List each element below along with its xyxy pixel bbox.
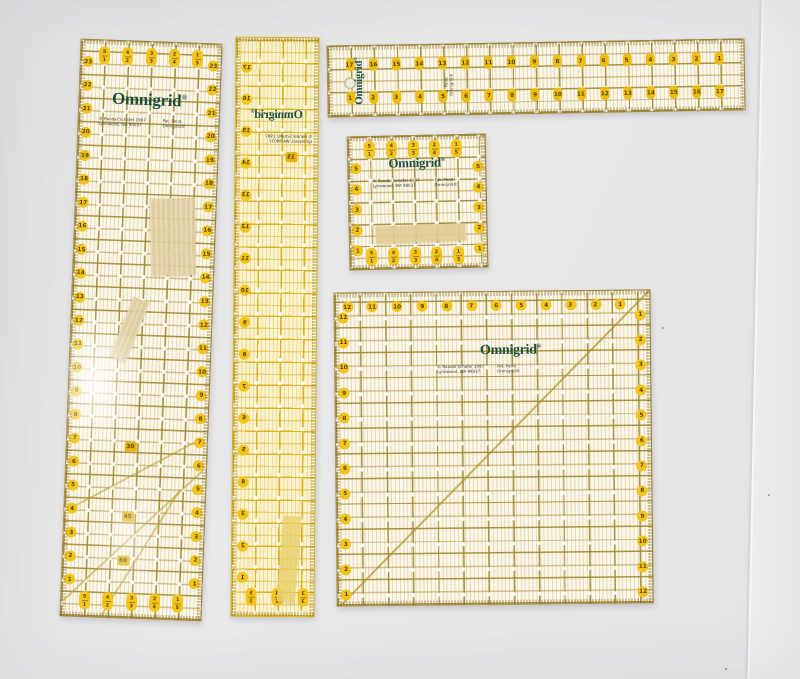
number-badge: 2 bbox=[635, 334, 646, 345]
number-badge: 3 bbox=[392, 90, 401, 103]
angle-line-45 bbox=[341, 290, 650, 605]
number-badge: 1 bbox=[635, 309, 646, 320]
number-badge: 5 bbox=[516, 300, 527, 311]
number-badge: 11 bbox=[637, 561, 648, 572]
angle-badge: 60 bbox=[117, 555, 129, 565]
dust-speck bbox=[768, 494, 770, 496]
number-badge: 9 bbox=[416, 301, 427, 312]
angle-badge: 45 bbox=[122, 511, 134, 521]
number-badge: 10 bbox=[554, 88, 563, 101]
number-badge: 10 bbox=[239, 285, 250, 296]
number-badge: 5 bbox=[238, 444, 249, 455]
number-badge: 12 bbox=[637, 586, 648, 597]
number-badge: 15 bbox=[669, 86, 678, 99]
brand-logo: Omnigrid® bbox=[480, 342, 541, 359]
number-badge: 8 bbox=[339, 413, 350, 424]
number-badge: 1 bbox=[615, 299, 626, 310]
number-badge: 17 bbox=[241, 62, 252, 73]
dual-number-badge: 33 bbox=[408, 140, 419, 158]
masking-tape bbox=[150, 198, 196, 276]
number-badge: 9 bbox=[239, 317, 250, 328]
registered-mark: ® bbox=[251, 109, 255, 115]
number-badge: 16 bbox=[241, 94, 252, 105]
fine-print: Pat. Pend.Omnigrid® bbox=[497, 364, 532, 374]
registered-mark: ® bbox=[181, 93, 187, 102]
brand-name: Omnigrid bbox=[480, 343, 537, 359]
dual-number-badge: 24 bbox=[149, 593, 161, 611]
number-badge: 8 bbox=[553, 55, 562, 68]
number-badge: 4 bbox=[635, 384, 646, 395]
number-badge: 9 bbox=[530, 55, 539, 68]
number-badge: 1 bbox=[346, 91, 355, 104]
number-badge: 6 bbox=[636, 435, 647, 446]
number-badge: 6 bbox=[339, 463, 350, 474]
number-badge: 11 bbox=[577, 87, 586, 100]
number-badge: 16 bbox=[692, 85, 701, 98]
dual-number-badge: 24 bbox=[431, 246, 442, 264]
number-badge: 10 bbox=[507, 55, 516, 68]
brand-logo-mirrored: Omnigrid® bbox=[236, 107, 318, 123]
number-badge: 5 bbox=[622, 53, 631, 66]
edge-ticks bbox=[739, 39, 744, 109]
number-badge: 6 bbox=[238, 413, 249, 424]
ruler-6x6: Omnigrid® © Randal Schafer 1987Lynnwood,… bbox=[347, 134, 489, 271]
number-badge: 5 bbox=[339, 488, 350, 499]
masking-tape bbox=[110, 297, 150, 363]
number-badge: 1 bbox=[715, 52, 724, 65]
dual-number-badge: 15 bbox=[172, 594, 184, 612]
edge-ticks bbox=[645, 290, 652, 602]
dual-number-badge: 42 bbox=[102, 592, 114, 610]
fine-print: © Randal Schafer 1987Lynnwood, WA 98037 bbox=[98, 116, 133, 127]
number-badge: 7 bbox=[339, 438, 350, 449]
edge-ticks bbox=[327, 47, 332, 117]
dual-number-badge: 33 bbox=[410, 247, 421, 265]
dual-number-badge: 24 bbox=[169, 49, 181, 67]
number-badge: 17 bbox=[345, 58, 354, 71]
dust-speck bbox=[725, 668, 727, 670]
dual-number-badge: 33 bbox=[126, 593, 138, 611]
number-badge: 4 bbox=[238, 476, 249, 487]
dual-number-badge: 33 bbox=[146, 48, 158, 66]
number-badge: 3 bbox=[340, 539, 351, 550]
number-badge: 4 bbox=[540, 299, 551, 310]
dual-number-badge: 33 bbox=[298, 588, 309, 606]
number-badge: 6 bbox=[461, 89, 470, 102]
number-badge: 10 bbox=[338, 362, 349, 373]
number-badge: 8 bbox=[507, 88, 516, 101]
number-badge: 5 bbox=[636, 410, 647, 421]
number-badge: 11 bbox=[367, 301, 378, 312]
fine-print: © Randal Schafer 1987Lynnwood, WA 98037 bbox=[373, 178, 408, 189]
number-badge: 2 bbox=[692, 52, 701, 65]
dual-number-badge: 51 bbox=[246, 588, 257, 606]
dual-number-badge: 51 bbox=[366, 248, 377, 266]
number-badge: 13 bbox=[438, 57, 447, 70]
dust-speck bbox=[662, 327, 664, 329]
dual-number-badge: 15 bbox=[453, 246, 464, 264]
number-badge: 8 bbox=[441, 300, 452, 311]
number-badge: 15 bbox=[241, 125, 252, 136]
number-badge: 13 bbox=[240, 189, 251, 200]
registered-mark: ® bbox=[441, 157, 445, 163]
angle-badge: 30 bbox=[125, 441, 137, 451]
number-badge: 13 bbox=[623, 86, 632, 99]
dual-number-badge: 15 bbox=[451, 139, 462, 157]
fine-print: Pat. Pend.Omnigrid® bbox=[162, 119, 197, 130]
number-badge: 8 bbox=[239, 349, 250, 360]
number-badge: 7 bbox=[576, 54, 585, 67]
registered-mark: ® bbox=[537, 343, 541, 350]
number-badge: 3 bbox=[635, 359, 646, 370]
fine-print: Pat. Pend.Omnigrid® bbox=[434, 177, 469, 188]
ruler-12-5-square: Omnigrid® © Randal Schafer 1987Lynnwood,… bbox=[333, 289, 653, 606]
edge-ticks bbox=[309, 38, 318, 616]
number-badge: 12 bbox=[600, 87, 609, 100]
number-badge: 11 bbox=[240, 253, 251, 264]
number-badge: 14 bbox=[414, 57, 423, 70]
number-badge: 12 bbox=[342, 301, 353, 312]
dual-number-badge: 42 bbox=[122, 47, 134, 65]
registered-mark: ® bbox=[354, 57, 359, 60]
masking-tape bbox=[375, 223, 466, 243]
ruler-6x24: Omnigrid® © Randal Schafer 1987Lynnwood,… bbox=[59, 39, 222, 622]
number-badge: 8 bbox=[636, 485, 647, 496]
number-badge: 10 bbox=[392, 301, 403, 312]
number-badge: 9 bbox=[338, 388, 349, 399]
number-badge: 12 bbox=[461, 56, 470, 69]
number-badge: 10 bbox=[637, 536, 648, 547]
number-badge: 1 bbox=[237, 572, 248, 583]
number-badge: 12 bbox=[338, 312, 349, 323]
number-badge: 9 bbox=[637, 510, 648, 521]
number-badge: 15 bbox=[391, 57, 400, 70]
edge-ticks bbox=[231, 38, 240, 616]
dual-number-badge: 51 bbox=[79, 591, 91, 609]
number-badge: 12 bbox=[240, 221, 251, 232]
fine-print: © Randal Schafer 1987Lynnwood, WA 98037 bbox=[437, 364, 472, 374]
number-badge: 7 bbox=[484, 89, 493, 102]
number-badge: 6 bbox=[599, 54, 608, 67]
number-badge: 5 bbox=[438, 90, 447, 103]
number-badge: 2 bbox=[369, 91, 378, 104]
number-badge: 1 bbox=[340, 589, 351, 600]
number-badge: 11 bbox=[338, 337, 349, 348]
number-badge: 2 bbox=[237, 540, 248, 551]
number-badge: 3 bbox=[668, 53, 677, 66]
number-badge: 14 bbox=[240, 157, 251, 168]
number-badge: 17 bbox=[715, 85, 724, 98]
number-badge: 6 bbox=[491, 300, 502, 311]
dual-number-badge: 51 bbox=[364, 141, 375, 159]
dual-number-badge: 42 bbox=[386, 140, 397, 158]
ruler-3x18: Omnigrid® Pat. Pend.Omnigrid® 1716151413… bbox=[326, 38, 745, 117]
photo-surface: Omnigrid® © Randal Schafer 1987Lynnwood,… bbox=[0, 0, 800, 679]
number-badge: 4 bbox=[645, 53, 654, 66]
number-badge: 16 bbox=[368, 58, 377, 71]
dual-number-badge: 42 bbox=[388, 247, 399, 265]
fine-print-mirrored: © Randal Schafer 1987Lynnwood, WA 98037 bbox=[277, 134, 312, 144]
dual-number-badge: 51 bbox=[99, 46, 111, 64]
number-badge: 7 bbox=[636, 460, 647, 471]
dual-number-badge: 15 bbox=[192, 50, 204, 68]
number-badge: 7 bbox=[466, 300, 477, 311]
number-badge: 2 bbox=[590, 299, 601, 310]
brand-logo-vertical: Omnigrid® bbox=[352, 46, 365, 116]
number-badge: 9 bbox=[530, 88, 539, 101]
number-badge: 11 bbox=[484, 56, 493, 69]
angle-line-45 bbox=[63, 470, 203, 600]
ruler-2-5x18-face-down: Omnigrid® © Randal Schafer 1987Lynnwood,… bbox=[230, 37, 319, 618]
dual-number-badge: 24 bbox=[429, 140, 440, 158]
number-badge: 7 bbox=[238, 381, 249, 392]
number-badge: 14 bbox=[646, 86, 655, 99]
number-badge: 2 bbox=[340, 564, 351, 575]
angle-badge: 15 bbox=[285, 152, 297, 162]
number-badge: 3 bbox=[565, 299, 576, 310]
surface-seam-panel bbox=[747, 0, 800, 679]
number-badge: 4 bbox=[415, 90, 424, 103]
brand-name: Omnigrid bbox=[112, 89, 182, 111]
number-badge: 3 bbox=[237, 508, 248, 519]
brand-logo: Omnigrid® bbox=[79, 88, 220, 113]
brand-name: Omnigrid bbox=[255, 107, 303, 121]
number-badge: 4 bbox=[340, 514, 351, 525]
